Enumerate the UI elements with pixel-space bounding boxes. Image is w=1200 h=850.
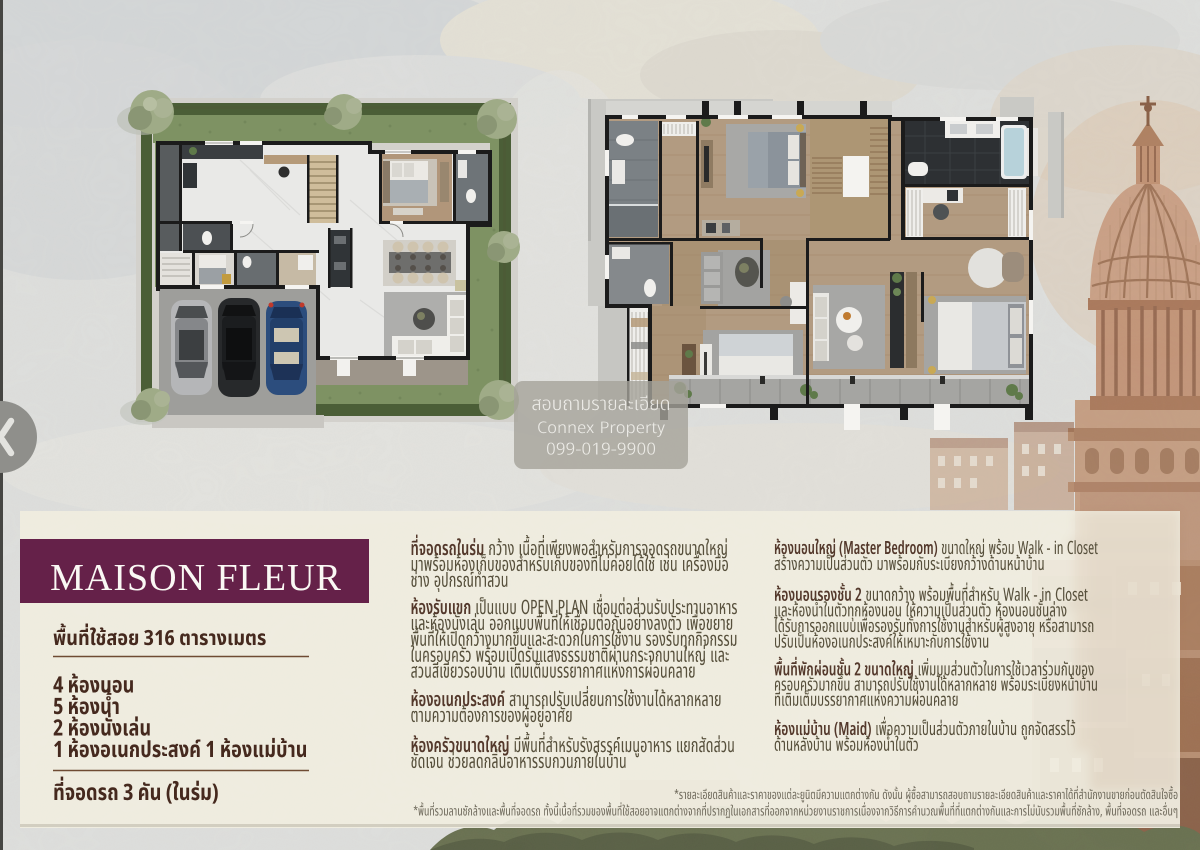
svg-text:MAISON FLEUR: MAISON FLEUR xyxy=(50,557,342,599)
